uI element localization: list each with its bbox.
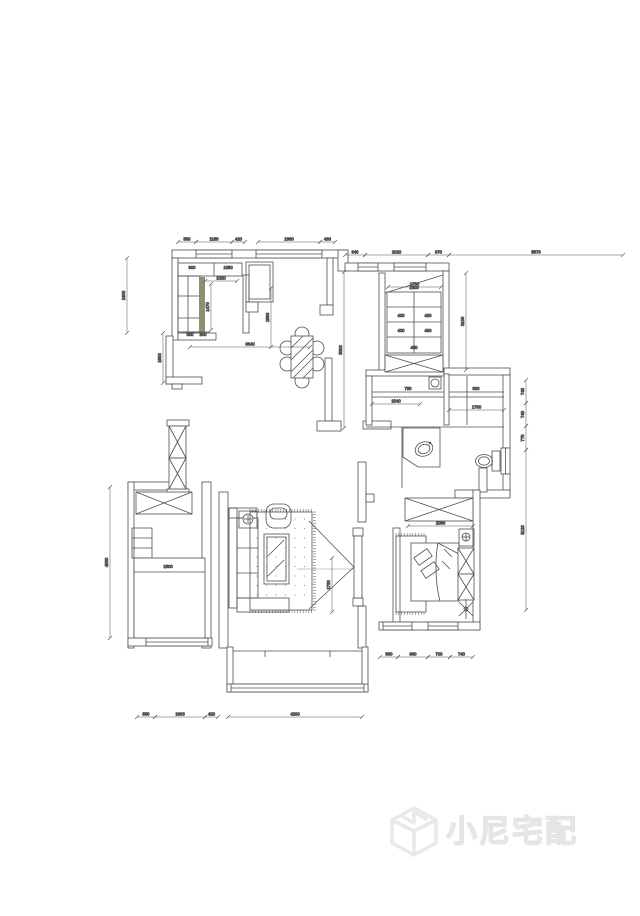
watermark-logo-cube-icon <box>392 808 436 855</box>
watermark: 小尼宅配 <box>0 0 640 916</box>
watermark-text: 小尼宅配 <box>446 814 578 849</box>
floorplan-canvas: 9001350600300180040040040040045075080015… <box>0 0 640 916</box>
